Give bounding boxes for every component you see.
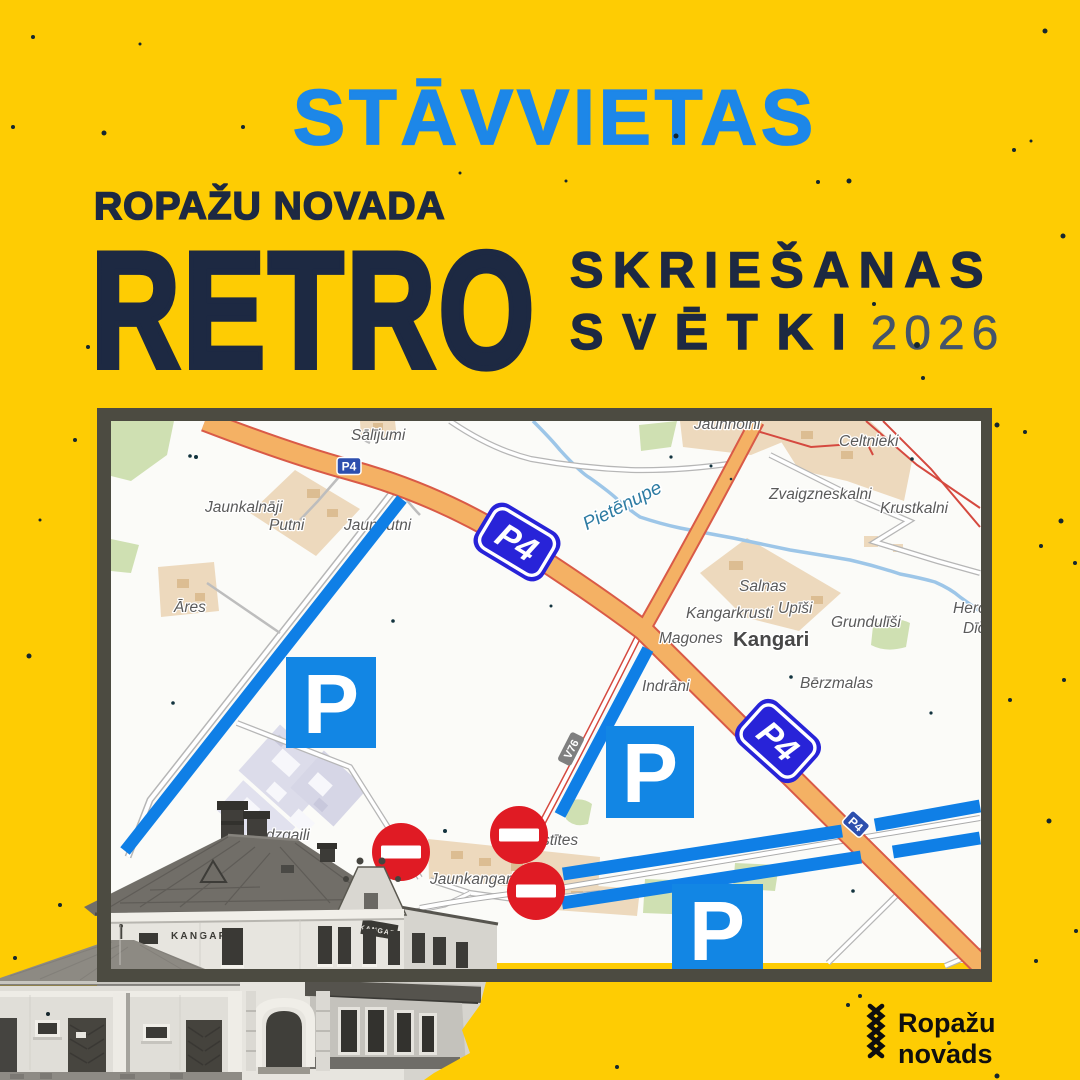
svg-text:Bērzmalas: Bērzmalas [800, 675, 873, 692]
svg-text:Jaunholni: Jaunholni [693, 421, 761, 433]
svg-text:Grundulīši: Grundulīši [831, 614, 901, 631]
svg-text:Salnas: Salnas [739, 578, 787, 595]
svg-text:Hercogi: Hercogi [953, 600, 981, 617]
svg-text:Indrāni: Indrāni [642, 678, 690, 695]
svg-text:Krustkalni: Krustkalni [880, 500, 949, 517]
svg-text:Magones: Magones [659, 630, 723, 647]
svg-text:Āres: Āres [173, 599, 206, 616]
svg-text:P: P [303, 657, 359, 751]
svg-text:novads: novads [898, 1039, 993, 1068]
svg-text:Upīši: Upīši [778, 600, 813, 617]
svg-text:Putni: Putni [269, 517, 305, 534]
svg-text:Sālījumi: Sālījumi [351, 427, 406, 444]
svg-text:Celtnieki: Celtnieki [839, 433, 899, 450]
svg-text:P: P [689, 884, 745, 969]
svg-text:Jaunkalnāji: Jaunkalnāji [204, 499, 283, 516]
svg-text:Ropažu: Ropažu [898, 1008, 996, 1038]
svg-text:Kangari: Kangari [733, 628, 809, 651]
svg-text:P4: P4 [342, 460, 357, 474]
svg-text:Zvaigzneskalni: Zvaigzneskalni [768, 486, 872, 503]
svg-text:Dīči: Dīči [963, 620, 981, 637]
svg-text:Kangarkrusti: Kangarkrusti [686, 605, 774, 622]
svg-text:P: P [622, 726, 678, 820]
